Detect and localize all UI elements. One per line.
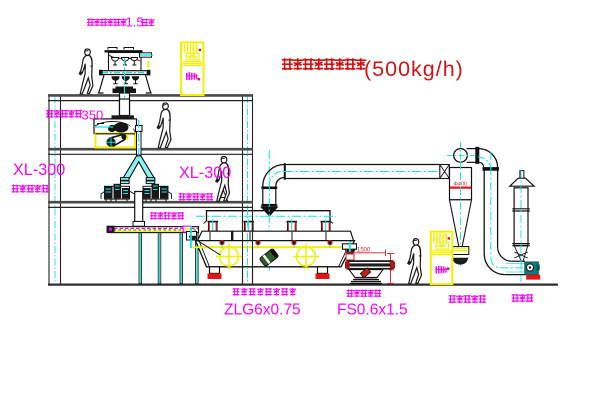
svg-text:XL-300: XL-300	[13, 161, 65, 179]
svg-text:350: 350	[82, 108, 104, 123]
svg-text:1500: 1500	[357, 248, 371, 254]
svg-text:XL-300: XL-300	[179, 164, 231, 182]
svg-text:FS0.6x1.5: FS0.6x1.5	[337, 302, 408, 319]
svg-text:1.5: 1.5	[126, 15, 144, 30]
svg-text:(500kg/h): (500kg/h)	[364, 57, 464, 81]
svg-text:ZLG6x0.75: ZLG6x0.75	[224, 302, 301, 319]
